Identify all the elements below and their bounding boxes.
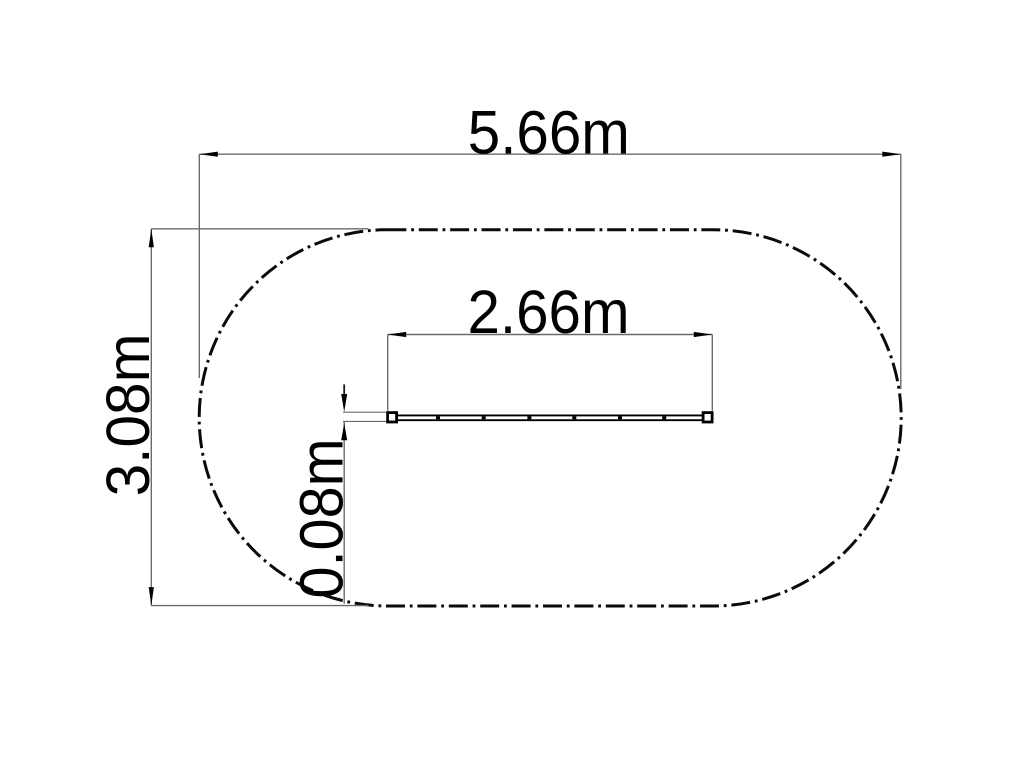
- svg-text:3.08m: 3.08m: [94, 334, 163, 497]
- svg-text:2.66m: 2.66m: [468, 278, 630, 347]
- svg-text:0.08m: 0.08m: [288, 438, 357, 598]
- svg-text:5.66m: 5.66m: [468, 99, 630, 168]
